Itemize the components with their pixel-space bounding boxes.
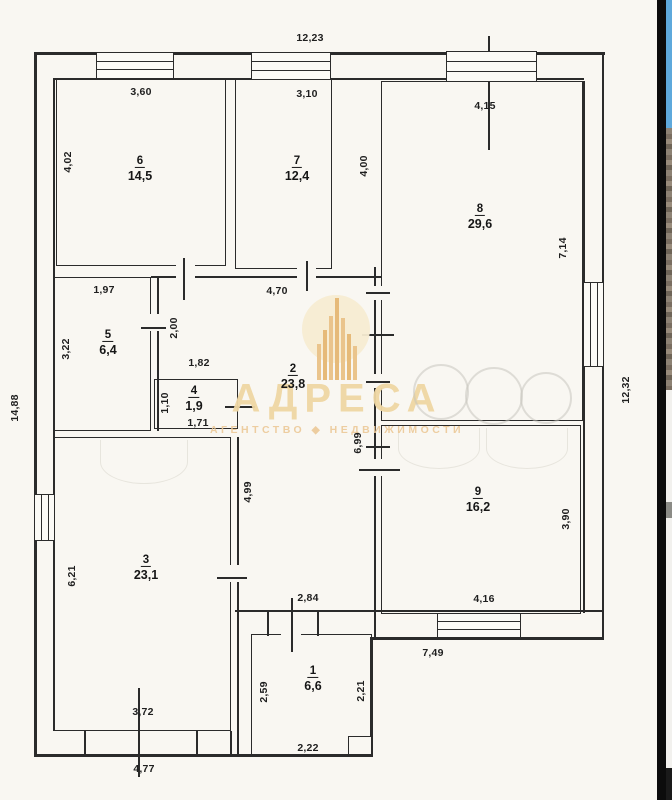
floor-plan-scan: АДРЕСА АГЕНТСТВО ◆ НЕДВИЖИМОСТИ 12,23 3,… [0,0,672,800]
wall [267,610,269,636]
dim-room3-bottom: 3,72 [132,706,153,718]
dim-room1-left: 2,59 [258,681,270,702]
room-1-label: 1 6,6 [304,661,321,693]
dim-hall-right: 6,99 [352,432,364,453]
room-5-label: 5 6,4 [99,325,116,357]
room-8-label: 8 29,6 [468,199,492,231]
dim-room3-height: 6,21 [66,565,78,586]
wall [237,437,239,755]
room-7-outline [235,78,332,269]
door-opening [227,565,239,582]
room-3-label: 3 23,1 [134,550,158,582]
dim-room1-bottom: 2,22 [297,742,318,754]
room-2-label: 2 23,8 [281,359,305,391]
dim-room7-height: 4,00 [358,155,370,176]
dim-room6-width: 3,60 [130,86,151,98]
dim-bottom-right: 7,49 [422,647,443,659]
room-6-label: 6 14,5 [128,151,152,183]
dim-overall-right: 12,32 [620,376,632,403]
watermark-subtitle: АГЕНТСТВО ◆ НЕДВИЖИМОСТИ [210,424,464,436]
door-tick [291,598,293,652]
dim-room4-top: 1,82 [188,357,209,369]
dim-overall-top: 12,23 [296,32,323,44]
door-tick [217,577,247,579]
dim-overall-bottom: 4,77 [133,763,154,775]
window-symbol [251,52,331,80]
dim-room5-width: 1,97 [93,284,114,296]
scan-artifact-arc [100,440,188,484]
room-4-label: 4 1,9 [185,381,202,413]
dim-overall-left: 14,88 [9,394,21,421]
door-tick [366,292,390,294]
wall [84,731,86,755]
dim-room1-right: 2,21 [355,680,367,701]
dim-room7-width: 3,10 [296,88,317,100]
wall [374,267,376,639]
dim-room8-height: 7,14 [557,237,569,258]
door-opening [371,459,385,476]
room-9-label: 9 16,2 [466,482,490,514]
wall [317,610,319,636]
dim-room6-height: 4,02 [62,151,74,172]
dim-room9-height: 3,90 [560,508,572,529]
dim-room5-door: 2,00 [168,317,180,338]
photo-edge-speck [666,502,672,518]
dim-room9-bottom: 4,16 [473,593,494,605]
room-7-label: 7 12,4 [285,151,309,183]
dim-room8-width: 4,15 [474,100,495,112]
window-symbol [96,52,174,79]
watermark-title: АДРЕСА [231,377,442,422]
door-tick [183,258,185,300]
photo-edge-building [666,128,672,390]
wall [34,52,37,757]
dim-room4-height: 1,10 [159,392,171,413]
window-symbol [583,282,604,367]
photo-edge-white [666,390,672,768]
dim-hall-top: 4,70 [266,285,287,297]
door-opening [176,263,195,278]
door-tick [366,446,390,448]
ghost-watermark [465,367,523,425]
dim-room5-height: 3,22 [60,338,72,359]
ghost-watermark [520,372,572,424]
fixture-notch [348,736,372,755]
window-symbol [34,494,55,541]
door-tick [306,261,308,291]
door-tick [359,469,400,471]
ghost-watermark [413,364,469,420]
scan-artifact-arc [486,428,568,469]
photo-edge-dark-bottom [666,768,672,800]
photo-edge-divider [657,0,666,800]
wall [230,731,232,755]
dim-hall-mid: 4,99 [242,481,254,502]
window-symbol [437,613,521,638]
wall [196,731,198,755]
photo-edge-sky [666,0,672,128]
dim-hall-bottom: 2,84 [297,592,318,604]
dim-room4-bottom: 1,71 [187,417,208,429]
door-tick [141,327,166,329]
window-symbol [446,51,537,82]
watermark-building-bars-icon [317,294,357,380]
